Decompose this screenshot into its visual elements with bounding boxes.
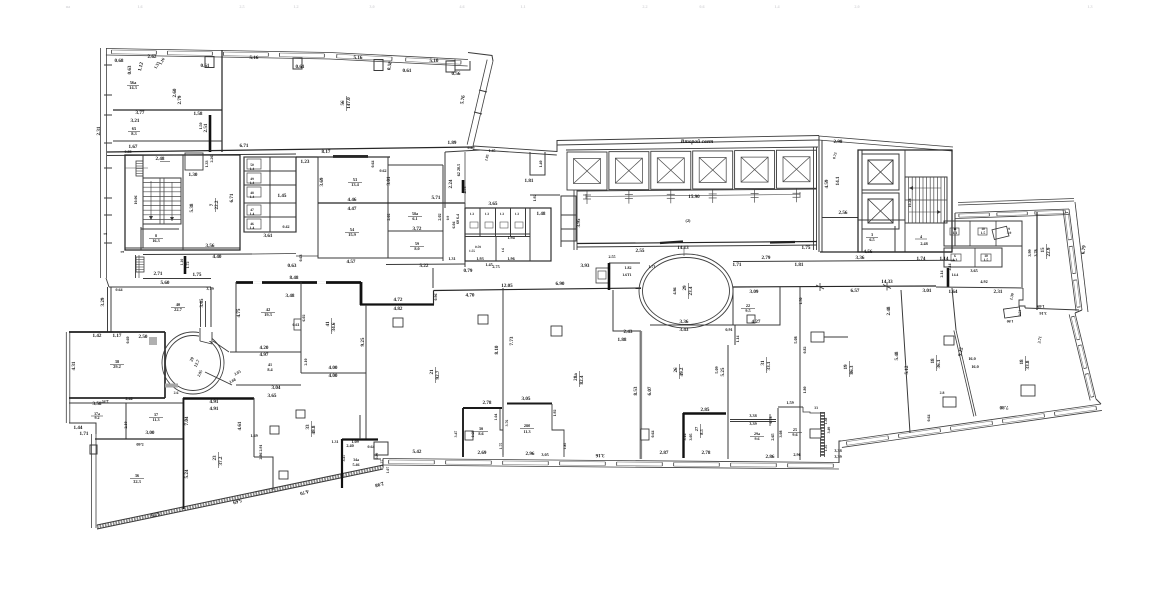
svg-text:48.8: 48.8	[311, 425, 317, 434]
svg-text:16.0: 16.0	[971, 364, 978, 369]
svg-text:4.91: 4.91	[210, 406, 219, 412]
svg-text:0.69: 0.69	[468, 145, 475, 150]
svg-text:3.65: 3.65	[199, 298, 205, 307]
svg-text:1.5: 1.5	[981, 231, 986, 235]
svg-text:4.56: 4.56	[864, 249, 873, 255]
svg-text:2.55: 2.55	[636, 248, 645, 254]
svg-text:6.71: 6.71	[229, 193, 235, 202]
svg-text:3.65: 3.65	[970, 268, 977, 273]
svg-text:22.9: 22.9	[1046, 247, 1052, 256]
svg-text:2.79: 2.79	[177, 95, 183, 104]
svg-text:32.3: 32.3	[133, 479, 141, 484]
svg-text:2.48: 2.48	[886, 306, 892, 315]
svg-text:1.2: 1.2	[293, 4, 298, 9]
svg-text:8.10: 8.10	[494, 345, 500, 354]
svg-text:2.87: 2.87	[660, 450, 669, 456]
svg-text:2.97: 2.97	[101, 399, 108, 404]
svg-text:4.6: 4.6	[459, 4, 464, 9]
svg-text:6.57: 6.57	[851, 288, 860, 294]
svg-text:1.10: 1.10	[180, 259, 184, 266]
svg-text:2.74: 2.74	[462, 187, 467, 194]
svg-text:1: 1	[120, 250, 126, 253]
svg-text:4.31: 4.31	[71, 361, 77, 370]
svg-text:3.08: 3.08	[778, 431, 783, 438]
svg-text:2.02: 2.02	[437, 213, 442, 220]
svg-text:2.79: 2.79	[762, 255, 771, 261]
svg-text:3.36: 3.36	[680, 319, 689, 325]
svg-text:1: 1	[103, 232, 109, 235]
svg-text:2.98: 2.98	[834, 139, 843, 145]
svg-text:2.85: 2.85	[701, 407, 710, 413]
svg-text:0.64: 0.64	[368, 444, 375, 449]
svg-text:3.56: 3.56	[206, 243, 215, 249]
svg-text:5.42: 5.42	[413, 449, 422, 455]
svg-text:22.7: 22.7	[174, 307, 182, 312]
svg-text:Второй свет: Второй свет	[680, 138, 714, 145]
svg-text:1.69: 1.69	[250, 433, 257, 438]
svg-text:3.47: 3.47	[341, 455, 346, 462]
svg-text:3.72: 3.72	[413, 226, 422, 232]
svg-text:2.43: 2.43	[624, 329, 633, 335]
svg-text:4.97: 4.97	[260, 352, 269, 358]
svg-text:1.48: 1.48	[537, 211, 546, 217]
svg-text:2.8: 2.8	[940, 391, 945, 395]
svg-text:10.28: 10.28	[907, 199, 912, 208]
svg-text:1.81: 1.81	[525, 178, 534, 184]
svg-text:1.3: 1.3	[500, 212, 505, 216]
svg-text:29.2: 29.2	[113, 364, 121, 369]
svg-text:0.91: 0.91	[725, 327, 732, 332]
svg-text:0.64: 0.64	[650, 431, 655, 438]
svg-text:3.39: 3.39	[749, 421, 756, 426]
svg-text:0.42: 0.42	[283, 224, 290, 229]
svg-text:3.38: 3.38	[749, 413, 756, 418]
svg-text:7.04: 7.04	[184, 416, 190, 425]
svg-text:0.79: 0.79	[464, 268, 473, 274]
svg-text:6.71: 6.71	[240, 143, 249, 149]
svg-text:1.75: 1.75	[499, 443, 503, 450]
svg-text:19.3: 19.3	[264, 312, 272, 317]
svg-text:0.96: 0.96	[433, 294, 438, 301]
svg-text:3.47: 3.47	[454, 431, 458, 438]
svg-text:3.05: 3.05	[688, 434, 693, 441]
svg-text:4.00: 4.00	[329, 365, 338, 371]
svg-text:1.1: 1.1	[520, 4, 525, 9]
svg-text:37.2: 37.2	[218, 456, 224, 465]
svg-text:2.62: 2.62	[148, 54, 157, 60]
svg-text:2.0: 2.0	[854, 4, 859, 9]
svg-text:9.2: 9.2	[95, 415, 100, 420]
svg-text:0.62: 0.62	[380, 168, 387, 173]
svg-text:2.31: 2.31	[96, 126, 102, 135]
svg-text:3.69: 3.69	[319, 177, 325, 186]
svg-text:6.5: 6.5	[869, 237, 874, 242]
svg-text:23.4: 23.4	[688, 286, 694, 295]
svg-text:1.88: 1.88	[618, 337, 627, 343]
svg-text:8.0: 8.0	[414, 246, 419, 251]
svg-text:14.3: 14.3	[129, 85, 137, 90]
svg-text:28б: 28б	[524, 423, 530, 428]
svg-text:3.0: 3.0	[369, 4, 374, 9]
svg-text:3.65: 3.65	[489, 201, 498, 207]
svg-text:3.16: 3.16	[595, 452, 604, 458]
svg-text:3.95: 3.95	[576, 218, 582, 227]
svg-text:5.10: 5.10	[430, 58, 439, 64]
svg-text:1.82: 1.82	[625, 265, 632, 270]
svg-text:1.71: 1.71	[80, 431, 89, 437]
svg-text:1.23: 1.23	[301, 159, 310, 165]
svg-text:2.86: 2.86	[258, 453, 263, 460]
svg-text:2.42: 2.42	[125, 396, 132, 401]
svg-text:3.58: 3.58	[93, 401, 102, 407]
svg-text:36.1: 36.1	[936, 359, 942, 368]
svg-text:2.69: 2.69	[478, 450, 487, 456]
svg-text:2.24: 2.24	[448, 179, 454, 188]
svg-text:4.82: 4.82	[394, 306, 403, 312]
svg-text:2.48: 2.48	[920, 241, 927, 246]
svg-text:16.0: 16.0	[968, 356, 975, 361]
svg-text:2.55: 2.55	[609, 254, 616, 259]
svg-text:2.91: 2.91	[258, 445, 263, 452]
svg-text:0.53: 0.53	[1018, 310, 1022, 316]
svg-text:1.69: 1.69	[1037, 304, 1044, 309]
svg-text:5.46: 5.46	[353, 462, 360, 467]
svg-text:1.14: 1.14	[940, 256, 949, 262]
svg-text:62 20.5: 62 20.5	[456, 164, 461, 177]
svg-text:6.04: 6.04	[451, 222, 456, 229]
svg-text:1.31: 1.31	[332, 439, 339, 444]
svg-text:1.14: 1.14	[735, 336, 740, 343]
svg-text:33.1: 33.1	[766, 361, 772, 370]
svg-text:3.01: 3.01	[386, 176, 392, 185]
svg-text:0.63: 0.63	[288, 263, 297, 269]
svg-text:1.31: 1.31	[448, 256, 455, 261]
svg-text:8.3: 8.3	[131, 131, 137, 136]
svg-text:1.35: 1.35	[824, 445, 828, 452]
svg-text:1.6: 1.6	[137, 4, 142, 9]
svg-text:2.26: 2.26	[209, 156, 214, 163]
svg-text:1.93: 1.93	[476, 256, 483, 261]
svg-text:1.90: 1.90	[1007, 319, 1014, 323]
svg-text:3.29: 3.29	[100, 297, 106, 306]
svg-text:11.3: 11.3	[152, 417, 159, 422]
svg-text:10.06: 10.06	[133, 196, 138, 205]
svg-text:1.3: 1.3	[1087, 4, 1092, 9]
svg-text:3.61: 3.61	[264, 233, 273, 239]
svg-text:4.27: 4.27	[752, 319, 761, 325]
svg-text:22.2: 22.2	[214, 200, 220, 209]
svg-text:1.94: 1.94	[507, 235, 515, 240]
svg-text:3.48: 3.48	[286, 293, 295, 299]
svg-text:0.6: 0.6	[699, 4, 704, 9]
svg-text:0.89: 0.89	[375, 453, 379, 460]
svg-text:3.05: 3.05	[541, 452, 548, 457]
svg-text:2.5: 2.5	[239, 4, 244, 9]
svg-text:1.6Т1: 1.6Т1	[622, 273, 631, 277]
svg-text:3.38: 3.38	[834, 448, 841, 453]
svg-text:2.50: 2.50	[139, 334, 148, 340]
svg-text:0.68: 0.68	[115, 58, 124, 64]
svg-text:3.78: 3.78	[1033, 249, 1038, 256]
svg-text:86.3: 86.3	[849, 365, 855, 374]
svg-text:3.05: 3.05	[522, 396, 531, 402]
svg-text:2.86: 2.86	[766, 454, 775, 460]
svg-text:1.96: 1.96	[507, 256, 514, 261]
svg-text:0.56: 0.56	[452, 71, 461, 77]
svg-text:1.3: 1.3	[515, 212, 520, 216]
svg-text:0.61: 0.61	[201, 63, 210, 69]
svg-text:0.59: 0.59	[475, 245, 481, 249]
svg-text:4.46: 4.46	[348, 197, 357, 203]
svg-text:1.40: 1.40	[538, 161, 543, 168]
svg-text:1.4: 1.4	[250, 195, 255, 199]
svg-text:1.38: 1.38	[824, 418, 828, 425]
svg-text:1.4: 1.4	[250, 181, 255, 185]
svg-text:5.25: 5.25	[720, 367, 726, 376]
svg-text:5.60: 5.60	[136, 442, 143, 447]
svg-text:5.24: 5.24	[184, 469, 190, 478]
svg-text:3.99: 3.99	[1027, 249, 1032, 256]
svg-text:4.86: 4.86	[672, 287, 677, 294]
svg-text:4.00: 4.00	[329, 373, 338, 379]
svg-text:3.00: 3.00	[146, 430, 155, 436]
svg-text:8.4: 8.4	[267, 367, 273, 372]
svg-text:3.04: 3.04	[272, 385, 281, 391]
svg-text:9.6: 9.6	[792, 432, 797, 437]
svg-text:4.47: 4.47	[348, 206, 357, 212]
svg-text:3.09: 3.09	[750, 289, 759, 295]
svg-text:4.91: 4.91	[210, 399, 219, 405]
svg-text:1.5: 1.5	[984, 258, 989, 262]
svg-text:1.4: 1.4	[250, 226, 255, 230]
svg-text:3.19: 3.19	[206, 286, 213, 291]
svg-text:4.59: 4.59	[824, 179, 830, 188]
svg-text:1.55: 1.55	[469, 249, 475, 253]
svg-text:15.90: 15.90	[688, 194, 700, 200]
svg-text:2.78: 2.78	[702, 450, 711, 456]
svg-text:3.01: 3.01	[923, 288, 932, 294]
svg-text:0.60: 0.60	[125, 337, 130, 344]
svg-text:33: 33	[814, 406, 818, 410]
svg-text:5.48: 5.48	[894, 351, 900, 360]
svg-text:5.12: 5.12	[904, 365, 910, 374]
svg-text:3.16: 3.16	[1039, 311, 1046, 316]
svg-text:1.44: 1.44	[74, 425, 83, 431]
svg-text:8.48: 8.48	[290, 275, 299, 281]
svg-text:1.45: 1.45	[278, 193, 287, 199]
svg-text:33.8: 33.8	[1025, 360, 1031, 369]
svg-text:49.2: 49.2	[679, 367, 685, 376]
svg-text:1.89: 1.89	[448, 140, 457, 146]
svg-text:3.77: 3.77	[136, 110, 145, 116]
svg-text:4.20: 4.20	[260, 345, 269, 351]
svg-text:1.71: 1.71	[733, 262, 742, 268]
svg-text:1.45: 1.45	[489, 148, 496, 153]
svg-text:0.68: 0.68	[471, 431, 475, 438]
svg-text:1.4: 1.4	[774, 4, 780, 9]
svg-text:5.09: 5.09	[714, 366, 719, 373]
svg-text:1.30: 1.30	[189, 172, 198, 178]
svg-text:0.64: 0.64	[926, 415, 931, 422]
svg-text:1.45: 1.45	[485, 262, 492, 267]
svg-text:2.02: 2.02	[386, 213, 391, 220]
svg-text:3.76: 3.76	[505, 420, 509, 427]
svg-text:4.70: 4.70	[466, 293, 475, 299]
svg-text:1.1: 1.1	[953, 231, 958, 235]
svg-text:5.71: 5.71	[432, 195, 441, 201]
svg-text:3.36: 3.36	[856, 255, 865, 261]
svg-text:1.58: 1.58	[194, 111, 203, 117]
svg-text:1.85: 1.85	[563, 443, 567, 450]
svg-text:1.75: 1.75	[193, 272, 202, 278]
svg-text:15.9: 15.9	[348, 232, 356, 237]
svg-text:0.61: 0.61	[296, 64, 305, 70]
svg-text:3.21: 3.21	[131, 118, 140, 124]
svg-text:8.17: 8.17	[322, 149, 331, 155]
svg-text:6.1: 6.1	[412, 216, 417, 221]
svg-text:2.14: 2.14	[939, 271, 944, 278]
svg-text:3.93: 3.93	[581, 263, 590, 269]
svg-text:11.3: 11.3	[523, 429, 530, 434]
svg-text:1.09: 1.09	[351, 439, 358, 444]
svg-text:1.42: 1.42	[93, 333, 102, 339]
svg-text:2.48: 2.48	[156, 156, 165, 162]
svg-text:1.74: 1.74	[917, 256, 926, 262]
svg-text:3.49: 3.49	[827, 427, 831, 434]
svg-text:2.65: 2.65	[770, 433, 775, 440]
svg-text:7.73: 7.73	[509, 336, 515, 345]
svg-text:1.81: 1.81	[795, 262, 804, 268]
svg-text:82.4: 82.4	[579, 375, 585, 384]
svg-text:4.72: 4.72	[394, 297, 403, 303]
svg-text:1.92: 1.92	[552, 410, 557, 417]
svg-text:3.9: 3.9	[1007, 231, 1012, 235]
svg-text:2.31: 2.31	[994, 289, 1003, 295]
svg-text:2.10: 2.10	[303, 359, 308, 366]
svg-text:1.80: 1.80	[802, 387, 807, 394]
svg-text:0.64: 0.64	[116, 287, 123, 292]
svg-text:0.63: 0.63	[127, 65, 133, 74]
svg-text:3.65: 3.65	[268, 393, 277, 399]
svg-text:1.59: 1.59	[786, 400, 793, 405]
svg-text:1.3: 1.3	[953, 258, 958, 262]
svg-text:8.5: 8.5	[699, 428, 704, 434]
svg-text:1.07: 1.07	[386, 467, 390, 474]
svg-text:1.4: 1.4	[250, 212, 255, 216]
svg-text:1.64: 1.64	[949, 289, 958, 295]
svg-text:2.6: 2.6	[174, 391, 179, 395]
svg-text:2.96: 2.96	[526, 451, 535, 457]
svg-text:8.53: 8.53	[633, 386, 639, 395]
svg-text:0.82: 0.82	[802, 347, 807, 354]
svg-text:0.63: 0.63	[298, 255, 303, 262]
svg-text:4.57: 4.57	[347, 259, 356, 265]
svg-text:2.2: 2.2	[642, 4, 647, 9]
svg-text:0.88: 0.88	[125, 149, 132, 154]
svg-text:6.90: 6.90	[556, 281, 565, 287]
svg-text:2.56: 2.56	[839, 210, 848, 216]
svg-text:1.75: 1.75	[802, 245, 811, 251]
svg-text:92.7: 92.7	[435, 370, 441, 379]
svg-text:0.9: 0.9	[446, 216, 450, 221]
svg-text:2.10: 2.10	[123, 422, 128, 429]
svg-text:5.08: 5.08	[793, 336, 798, 343]
svg-text:1.3: 1.3	[470, 212, 475, 216]
svg-text:5.16: 5.16	[250, 55, 259, 61]
svg-text:1.4: 1.4	[250, 167, 255, 171]
svg-text:8.6: 8.6	[478, 431, 483, 436]
svg-text:1.6: 1.6	[501, 248, 505, 253]
svg-text:2.75: 2.75	[492, 264, 499, 269]
svg-text:0.78: 0.78	[768, 417, 773, 424]
svg-text:1.72: 1.72	[185, 262, 190, 269]
svg-text:9.5: 9.5	[745, 308, 750, 313]
svg-text:0.61: 0.61	[403, 68, 412, 74]
svg-text:9.25: 9.25	[360, 337, 366, 346]
svg-text:4.92: 4.92	[980, 279, 987, 284]
svg-text:12.05: 12.05	[501, 283, 513, 289]
svg-text:3.39: 3.39	[834, 454, 841, 459]
svg-text:5.38: 5.38	[189, 203, 195, 212]
svg-text:2.71: 2.71	[154, 271, 163, 277]
svg-text:0.64: 0.64	[370, 161, 375, 168]
svg-text:13.4: 13.4	[351, 182, 359, 187]
svg-text:14.1: 14.1	[835, 176, 841, 185]
svg-text:1.92: 1.92	[532, 195, 537, 202]
svg-text:1.17: 1.17	[113, 333, 122, 339]
svg-text:3.14: 3.14	[682, 434, 687, 441]
svg-text:9.6: 9.6	[755, 436, 760, 441]
svg-text:147.0: 147.0	[346, 97, 352, 109]
svg-text:4.61: 4.61	[237, 421, 243, 430]
svg-text:1.50: 1.50	[198, 123, 203, 130]
svg-text:6.07: 6.07	[647, 386, 653, 395]
svg-text:16.3: 16.3	[152, 238, 159, 243]
svg-text:14.33: 14.33	[881, 279, 893, 285]
svg-text:2.78: 2.78	[483, 400, 492, 406]
svg-text:4.75: 4.75	[236, 308, 242, 317]
svg-text:0.61: 0.61	[293, 322, 300, 327]
svg-text:2.96: 2.96	[793, 452, 800, 457]
svg-text:1.50: 1.50	[798, 297, 803, 304]
svg-text:1.71: 1.71	[648, 264, 655, 269]
svg-text:6.02: 6.02	[301, 315, 306, 322]
svg-text:(2): (2)	[686, 218, 691, 223]
svg-text:4.40: 4.40	[213, 254, 222, 260]
svg-text:2.51: 2.51	[203, 123, 209, 132]
svg-text:14.13: 14.13	[677, 245, 689, 251]
svg-text:7.80: 7.80	[999, 404, 1008, 410]
svg-text:1.04: 1.04	[494, 414, 498, 421]
svg-text:34.6: 34.6	[331, 322, 337, 331]
svg-text:5.60: 5.60	[161, 280, 170, 286]
svg-text:5.16: 5.16	[354, 55, 363, 61]
svg-text:3.43: 3.43	[680, 327, 689, 333]
svg-text:5.22: 5.22	[420, 263, 429, 269]
svg-text:1.3: 1.3	[485, 212, 490, 216]
svg-text:2.14: 2.14	[947, 264, 952, 271]
svg-text:14.4: 14.4	[952, 273, 959, 277]
svg-text:1.27: 1.27	[380, 460, 384, 467]
